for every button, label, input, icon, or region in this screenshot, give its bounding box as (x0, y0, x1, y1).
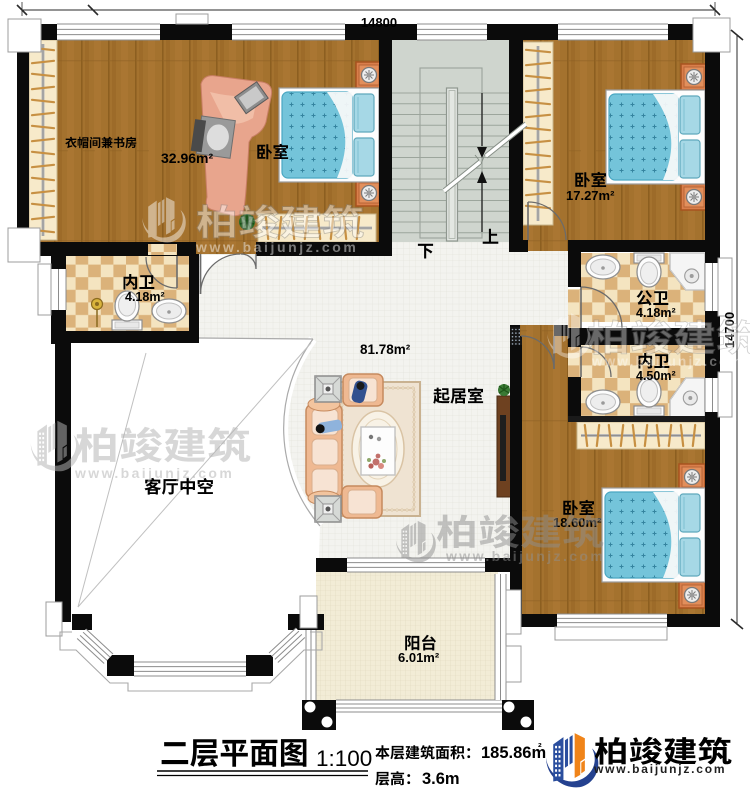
svg-text:4.50m²: 4.50m² (636, 369, 676, 383)
svg-text:3.6m: 3.6m (422, 770, 460, 788)
svg-text:17.27m²: 17.27m² (566, 188, 615, 203)
svg-text:www.baijunjz.com: www.baijunjz.com (593, 762, 726, 776)
svg-text:4.18m²: 4.18m² (125, 290, 165, 304)
svg-text:81.78m²: 81.78m² (360, 342, 411, 357)
svg-text:1:100: 1:100 (316, 746, 372, 771)
svg-text:4.18m²: 4.18m² (636, 306, 676, 320)
svg-text:www.baijunjz.com: www.baijunjz.com (445, 548, 605, 564)
svg-text:14800: 14800 (361, 15, 397, 30)
svg-text:32.96m²: 32.96m² (161, 150, 213, 166)
svg-text:²: ² (538, 742, 542, 754)
svg-text:www.baijunjz.com: www.baijunjz.com (591, 354, 744, 369)
svg-text:www.baijunjz.com: www.baijunjz.com (74, 465, 234, 481)
svg-text:6.01m²: 6.01m² (398, 650, 440, 665)
svg-text:www.baijunjz.com: www.baijunjz.com (195, 239, 358, 255)
svg-text:185.86m: 185.86m (481, 744, 546, 762)
